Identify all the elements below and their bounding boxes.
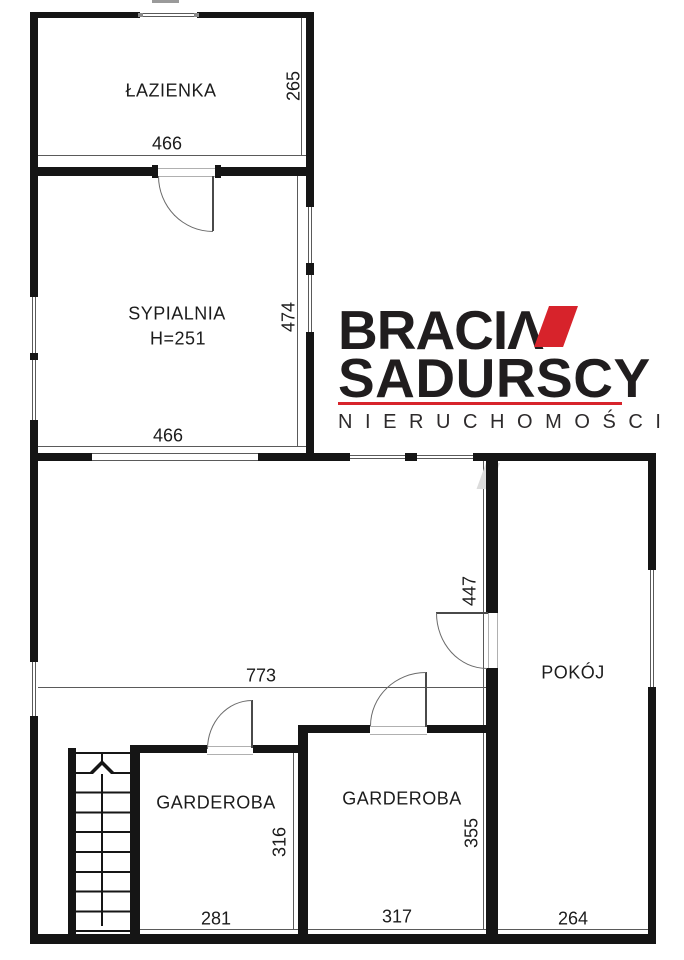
dim-sypialnia-depth: 474 <box>279 302 300 332</box>
floor-plan: ŁAZIENKA SYPIALNIA H=251 POKÓJ GARDEROBA… <box>0 0 684 960</box>
dim-garderoba-middle-width: 317 <box>382 907 412 928</box>
brand-name-bottom: SADURSCY <box>338 351 651 406</box>
dim-line-hall-opening-top <box>92 453 258 454</box>
dim-garderoba-left-width: 281 <box>201 909 231 930</box>
dim-hall-width: 773 <box>246 666 276 687</box>
door-swing-arc <box>158 176 213 232</box>
room-label-garderoba-left: GARDEROBA <box>156 793 276 814</box>
window <box>30 297 38 353</box>
wall-garderoba-divider <box>298 725 308 944</box>
wall-right-lower <box>648 453 656 944</box>
cropped-dim-mark <box>152 0 179 3</box>
door-sill <box>370 726 427 735</box>
door-swing-arc <box>207 700 252 749</box>
wall-garderoba-mid-top-right <box>427 725 486 733</box>
room-label-pokoj: POKÓJ <box>541 663 605 684</box>
brand-red-rule <box>338 402 622 405</box>
dim-line-hall-depth <box>483 461 484 929</box>
stairs-center-line <box>101 752 103 926</box>
dim-garderoba-middle-depth: 355 <box>462 818 483 848</box>
brand-tagline: N I E R U C H O M O Ś C I <box>338 412 664 432</box>
dim-garderoba-left-depth: 316 <box>270 827 291 857</box>
room-label-lazienka: ŁAZIENKA <box>125 81 216 102</box>
window <box>306 275 314 332</box>
door-swing-arc <box>436 613 487 669</box>
door-swing-arc <box>370 672 426 726</box>
wall-garderoba-left-top-left <box>130 745 207 753</box>
wall-garderoba-mid-top-left <box>298 725 370 733</box>
room-label-garderoba-middle: GARDEROBA <box>342 789 462 810</box>
wall-bottom <box>30 934 656 944</box>
window <box>30 360 38 420</box>
dim-sypialnia-width: 466 <box>153 426 183 447</box>
wall-pokoj-divider-lower <box>486 668 498 944</box>
door-sill <box>488 613 498 668</box>
door-post <box>215 165 221 178</box>
window <box>350 453 405 461</box>
wall-stairs-left <box>68 748 76 934</box>
window-end-cap <box>194 13 199 17</box>
dim-line-hall-opening-bottom <box>92 460 258 461</box>
window <box>648 570 656 687</box>
wall-garderoba-left-side <box>130 745 140 944</box>
room-label-sypialnia: SYPIALNIA <box>128 304 226 325</box>
dim-line-garderoba-left-depth <box>293 753 294 929</box>
wall-pokoj-divider-upper <box>486 453 498 613</box>
dim-lazienka-depth: 265 <box>284 71 305 101</box>
window-end-cap <box>138 13 143 17</box>
dim-pokoj-width: 264 <box>558 909 588 930</box>
dim-line-lazienka-width <box>38 155 306 156</box>
dim-lazienka-width: 466 <box>152 134 182 155</box>
room-label-sypialnia-height: H=251 <box>150 329 206 350</box>
dim-hall-depth: 447 <box>460 576 481 606</box>
wall-divider-lazienka-left <box>38 167 152 176</box>
window <box>30 662 38 716</box>
window <box>140 12 197 18</box>
stairs <box>76 752 130 932</box>
window <box>306 207 314 263</box>
window <box>417 453 473 461</box>
wall-divider-lazienka-right <box>221 167 306 176</box>
wall-hall-top-left <box>30 453 92 461</box>
wall-garderoba-left-top-right <box>253 745 298 753</box>
stairs-direction-arrow-inner <box>93 765 111 774</box>
